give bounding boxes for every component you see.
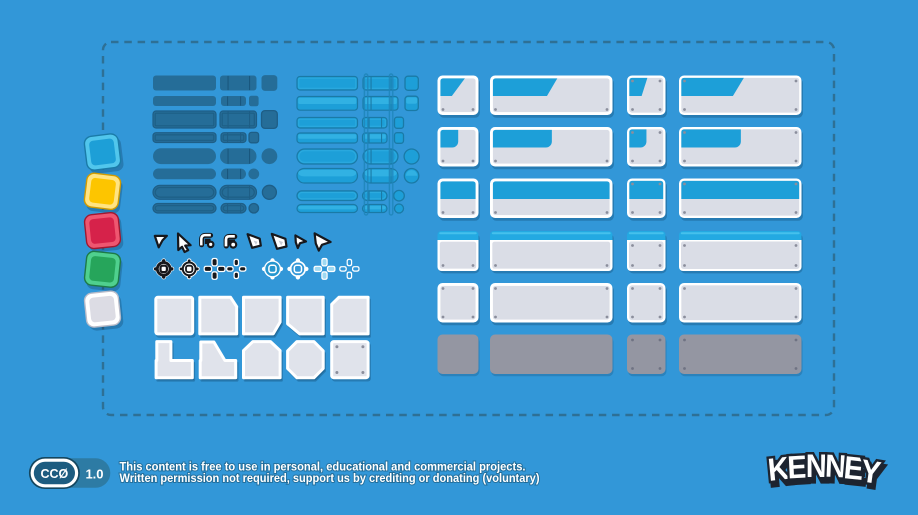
svg-text:E: E [786, 448, 807, 485]
svg-text:CCØ: CCØ [41, 467, 69, 481]
svg-text:Written permission not require: Written permission not required, support… [120, 471, 540, 485]
svg-text:1.0: 1.0 [85, 466, 103, 481]
